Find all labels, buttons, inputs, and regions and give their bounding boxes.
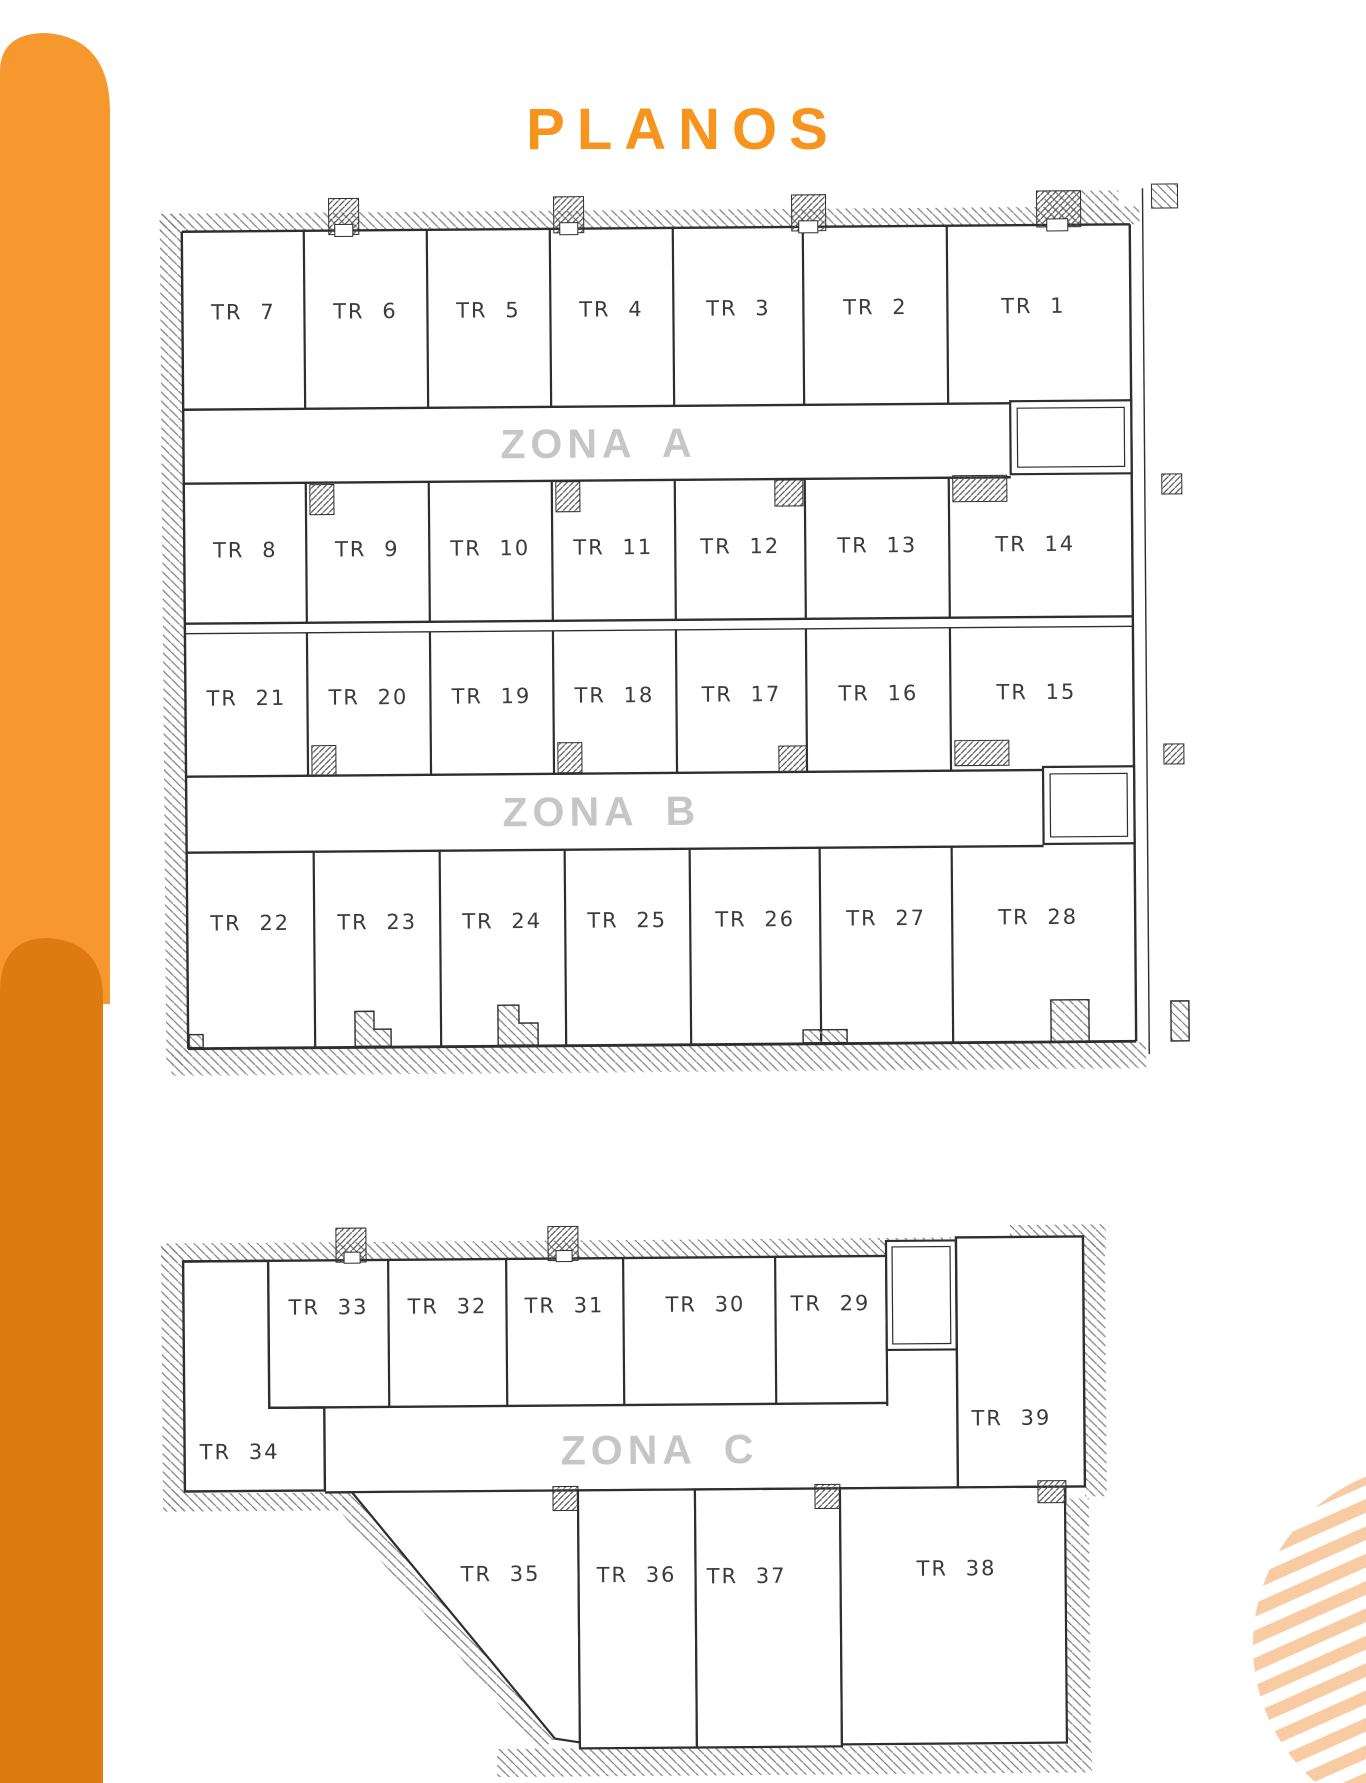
unit-label-tr33: TR 33: [287, 1295, 368, 1320]
unit-label-tr38: TR 38: [916, 1556, 997, 1581]
unit-label-tr2: TR 2: [842, 295, 908, 320]
unit-label-tr34: TR 34: [199, 1440, 280, 1465]
unit-label-tr1: TR 1: [1000, 294, 1066, 319]
zone-a-label: ZONA A: [500, 420, 696, 468]
unit-label-tr10: TR 10: [449, 536, 530, 561]
floor-plan-upper: ZONA A ZONA B TR 7 TR 6 TR 5 TR 4 TR 3 T…: [159, 184, 1189, 1076]
unit-label-tr29: TR 29: [789, 1291, 870, 1316]
unit-label-tr31: TR 31: [523, 1293, 604, 1318]
vestibule-lower: [886, 1240, 957, 1350]
unit-label-tr7: TR 7: [210, 300, 276, 325]
unit-label-tr5: TR 5: [455, 298, 521, 323]
unit-label-tr35: TR 35: [460, 1562, 541, 1587]
unit-label-tr22: TR 22: [209, 911, 290, 936]
lower-top-row-labels: TR 33 TR 32 TR 31 TR 30 TR 29: [287, 1291, 870, 1320]
unit-label-tr19: TR 19: [450, 684, 531, 709]
unit-label-tr30: TR 30: [664, 1292, 745, 1317]
unit-label-tr26: TR 26: [714, 907, 795, 932]
unit-label-tr11: TR 11: [572, 535, 653, 560]
unit-label-tr28: TR 28: [997, 905, 1078, 930]
unit-label-tr21: TR 21: [205, 686, 286, 711]
unit-label-tr8: TR 8: [212, 538, 278, 563]
unit-label-tr6: TR 6: [332, 299, 398, 324]
unit-label-tr17: TR 17: [700, 682, 781, 707]
unit-label-tr27: TR 27: [845, 906, 926, 931]
unit-label-tr13: TR 13: [836, 533, 917, 558]
unit-label-tr4: TR 4: [578, 297, 644, 322]
unit-label-tr18: TR 18: [573, 683, 654, 708]
vestibule-corridor-b: [1043, 766, 1135, 844]
decor-pill-dark: [0, 938, 103, 1783]
decor-striped-circle: [1253, 1463, 1366, 1783]
unit-label-tr20: TR 20: [327, 685, 408, 710]
unit-label-tr23: TR 23: [336, 910, 417, 935]
unit-label-tr3: TR 3: [705, 296, 771, 321]
unit-label-tr24: TR 24: [461, 909, 542, 934]
unit-label-tr9: TR 9: [334, 537, 400, 562]
unit-label-tr32: TR 32: [406, 1294, 487, 1319]
unit-label-tr36: TR 36: [596, 1563, 677, 1588]
lower-bottom-row: [352, 1487, 1067, 1751]
upper-row1-labels: TR 7 TR 6 TR 5 TR 4 TR 3 TR 2 TR 1: [210, 294, 1066, 325]
unit-label-tr37: TR 37: [706, 1564, 787, 1589]
zone-c-label: ZONA C: [561, 1426, 759, 1474]
unit-label-tr25: TR 25: [586, 908, 667, 933]
decor-pill-light: [0, 33, 110, 1004]
unit-label-tr16: TR 16: [837, 681, 918, 706]
unit-tr39-outline: [956, 1236, 1085, 1487]
unit-label-tr15: TR 15: [995, 680, 1076, 705]
upper-row2-labels: TR 8 TR 9 TR 10 TR 11 TR 12 TR 13 TR 14: [212, 532, 1075, 563]
unit-label-tr12: TR 12: [699, 534, 780, 559]
unit-label-tr39: TR 39: [970, 1406, 1051, 1431]
upper-row4-labels: TR 22 TR 23 TR 24 TR 25 TR 26 TR 27 TR 2…: [209, 905, 1078, 936]
planos-page: PLANOS: [0, 0, 1366, 1783]
floor-plan-lower: ZONA C TR 33 TR 32 TR 31 TR 30 TR 29 TR …: [161, 1222, 1110, 1779]
unit-label-tr14: TR 14: [994, 532, 1075, 557]
vestibule-corridor-a: [1010, 400, 1132, 474]
upper-row3-labels: TR 21 TR 20 TR 19 TR 18 TR 17 TR 16 TR 1…: [205, 680, 1076, 711]
zone-b-label: ZONA B: [502, 788, 700, 836]
floor-plan-canvas: ZONA A ZONA B TR 7 TR 6 TR 5 TR 4 TR 3 T…: [0, 0, 1366, 1783]
